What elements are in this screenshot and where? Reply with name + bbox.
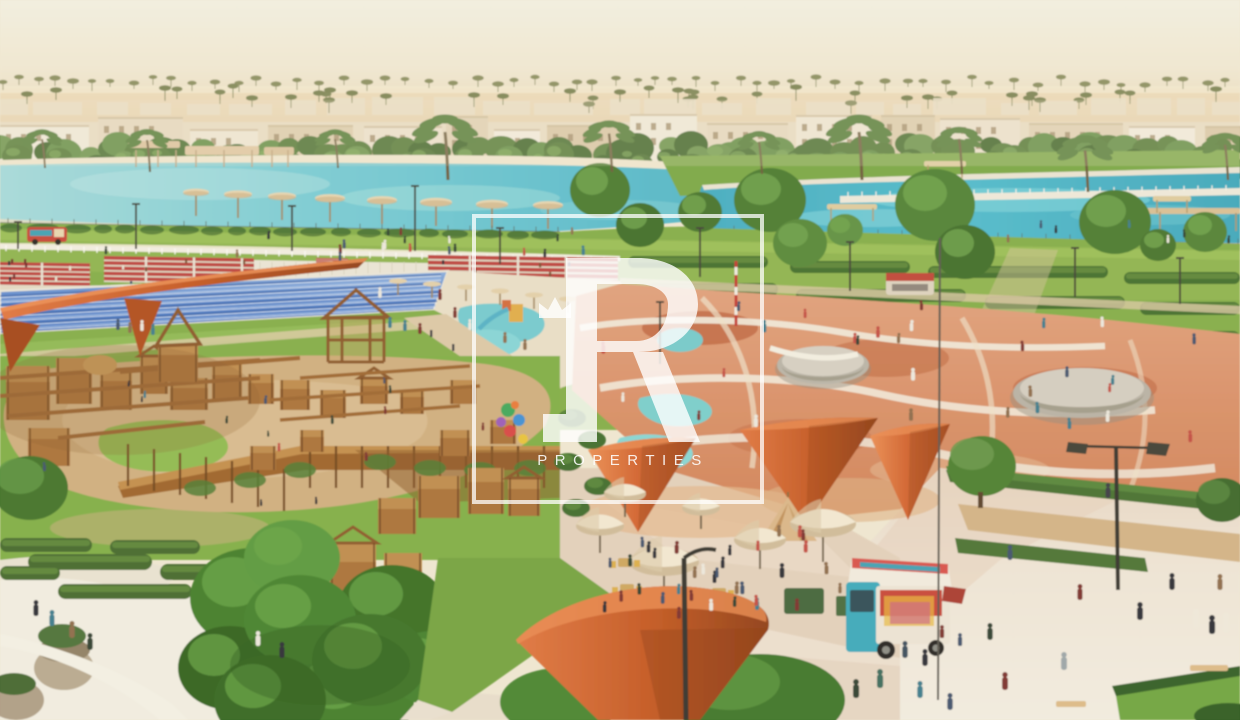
svg-text:PROPERTIES: PROPERTIES [537, 452, 708, 469]
